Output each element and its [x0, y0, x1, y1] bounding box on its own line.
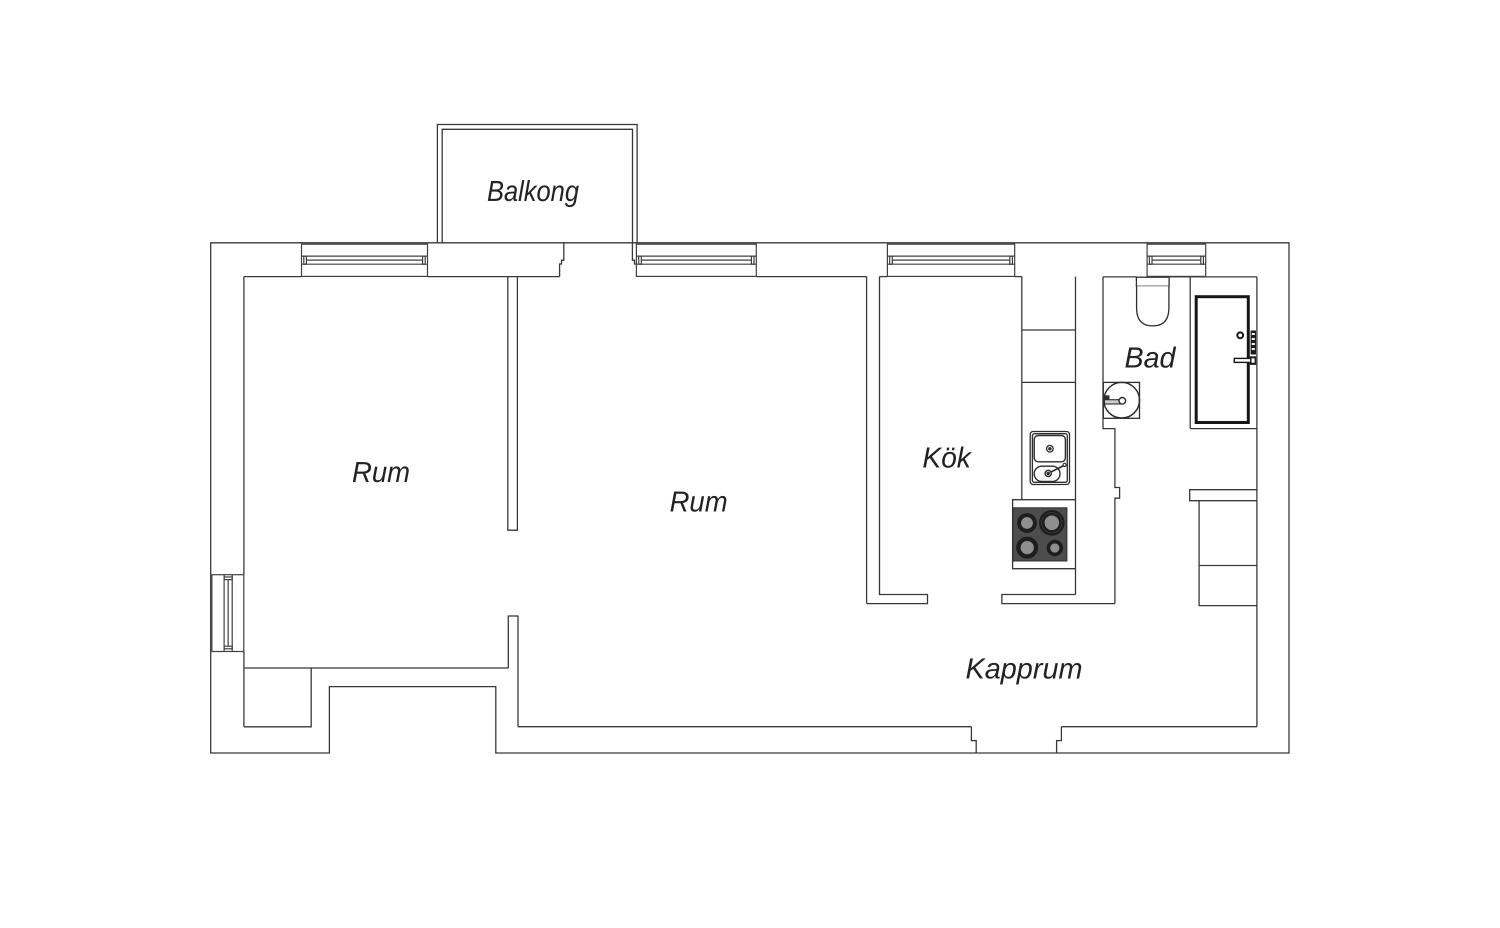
svg-text:Balkong: Balkong — [487, 176, 579, 208]
svg-text:Rum: Rum — [352, 457, 410, 489]
svg-text:Kök: Kök — [922, 442, 972, 474]
svg-text:Bad: Bad — [1124, 342, 1176, 374]
svg-text:Kapprum: Kapprum — [965, 653, 1082, 685]
svg-text:Rum: Rum — [670, 486, 728, 518]
